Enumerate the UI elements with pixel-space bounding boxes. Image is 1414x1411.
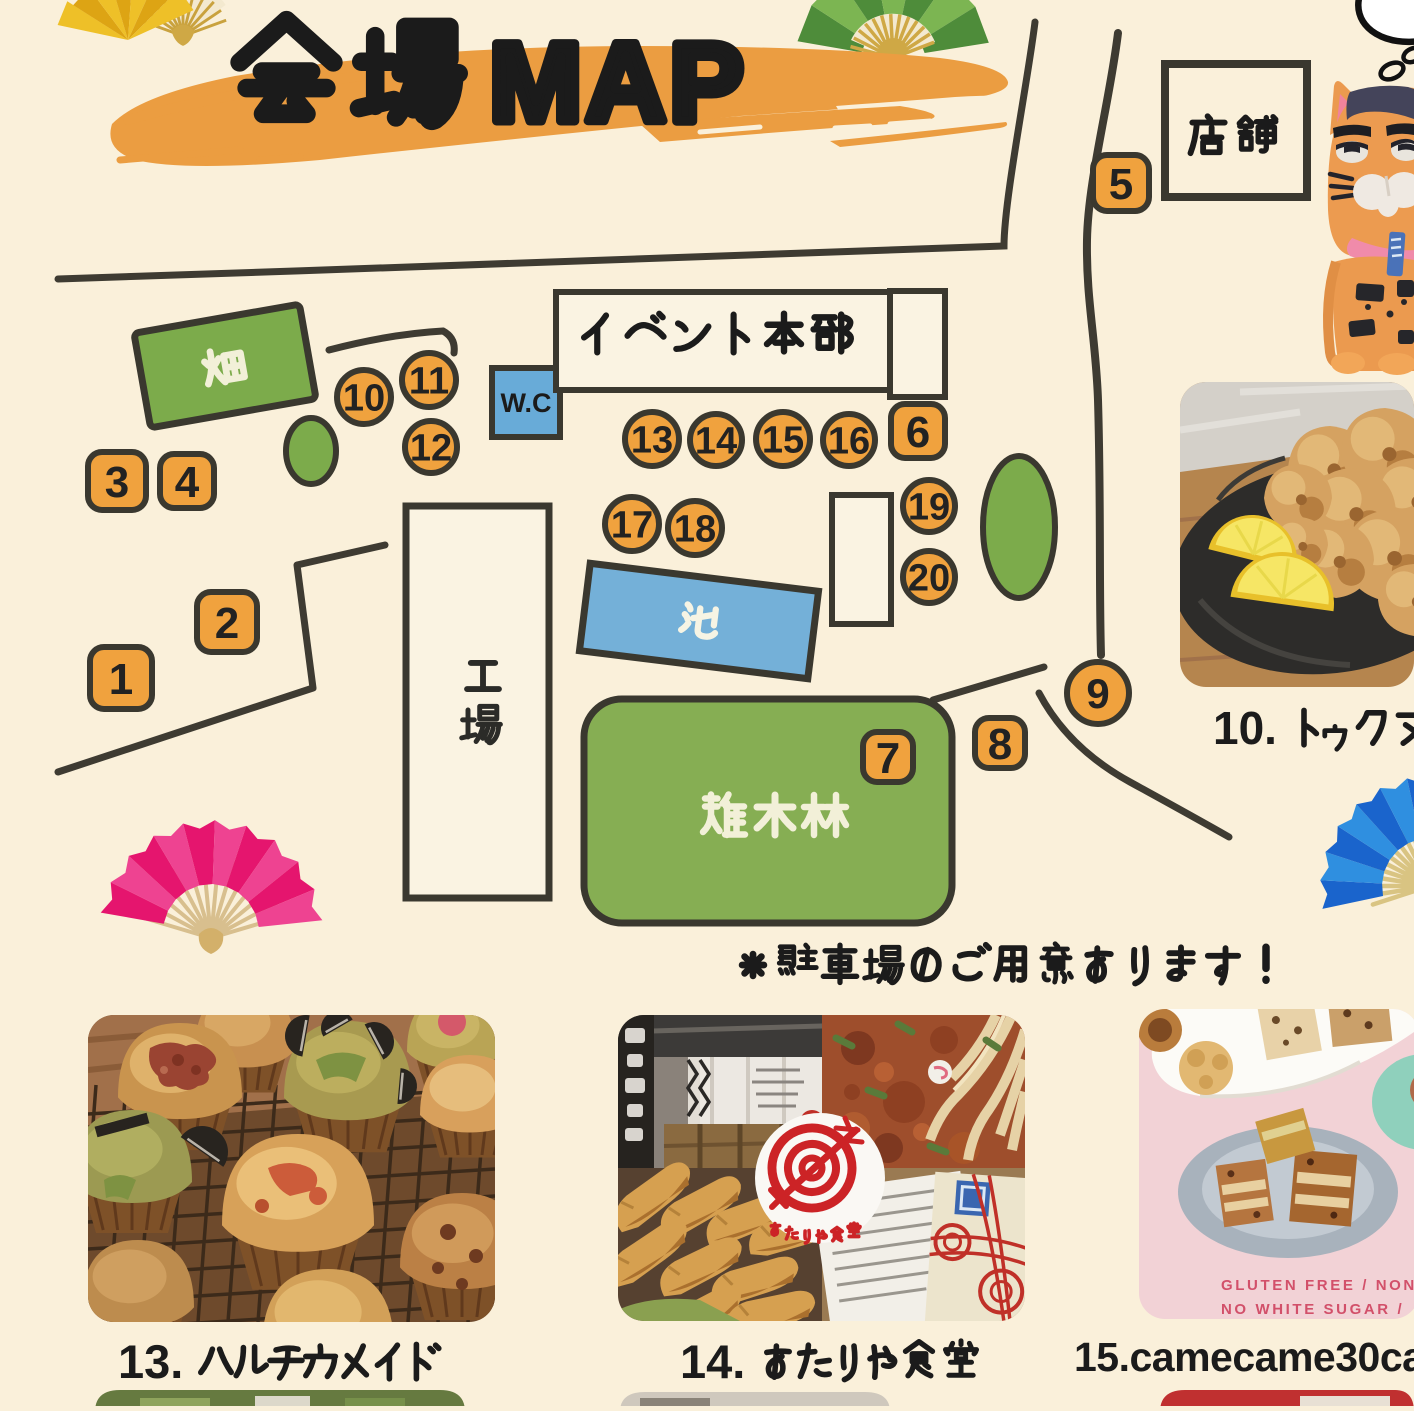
svg-text:NO WHITE SUGAR /: NO WHITE SUGAR / <box>1221 1301 1404 1318</box>
svg-text:16: 16 <box>828 421 870 463</box>
svg-text:13: 13 <box>631 420 673 462</box>
svg-text:15: 15 <box>762 420 804 462</box>
svg-text:18: 18 <box>674 509 716 551</box>
svg-text:10.: 10. <box>1213 702 1277 754</box>
svg-text:6: 6 <box>906 408 930 457</box>
svg-text:3: 3 <box>105 458 129 507</box>
svg-text:19: 19 <box>908 487 950 529</box>
svg-text:4: 4 <box>175 458 200 507</box>
svg-text:10: 10 <box>343 378 385 420</box>
svg-text:12: 12 <box>410 428 452 470</box>
svg-text:13.: 13. <box>118 1335 183 1388</box>
svg-text:1: 1 <box>109 655 133 704</box>
svg-text:2: 2 <box>215 599 239 648</box>
svg-text:14: 14 <box>695 421 737 463</box>
svg-text:11: 11 <box>409 361 449 403</box>
svg-text:MAP: MAP <box>489 20 747 145</box>
svg-text:15.camecame30cat: 15.camecame30cat <box>1074 1334 1414 1380</box>
svg-text:7: 7 <box>876 734 900 783</box>
svg-text:W.C: W.C <box>501 388 552 418</box>
svg-text:9: 9 <box>1086 670 1109 717</box>
svg-text:14.: 14. <box>680 1335 745 1388</box>
svg-text:20: 20 <box>908 558 950 600</box>
svg-text:5: 5 <box>1109 160 1133 209</box>
svg-text:17: 17 <box>611 505 653 547</box>
svg-text:GLUTEN FREE / NON: GLUTEN FREE / NON <box>1221 1277 1414 1294</box>
svg-text:8: 8 <box>988 720 1012 769</box>
